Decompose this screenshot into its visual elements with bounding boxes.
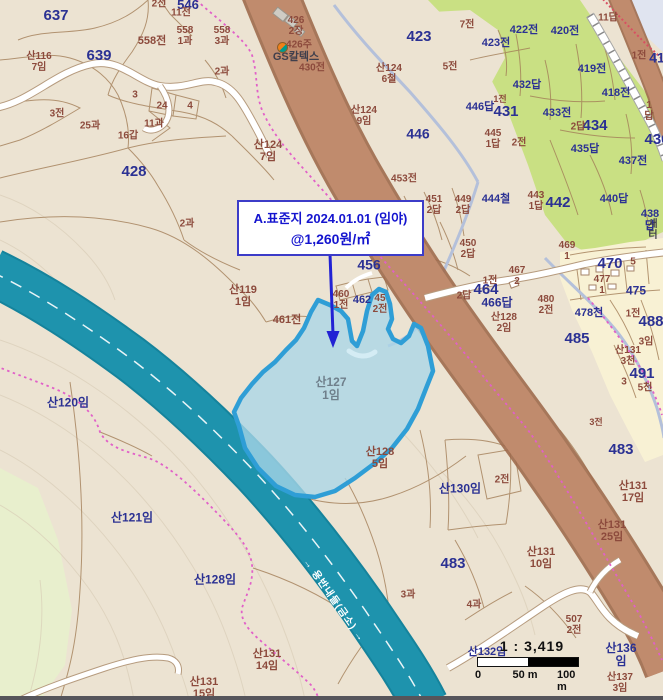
- cadastral-map-canvas[interactable]: 2전54611전637639558전558 1과558 3과산116 7임426…: [0, 0, 663, 700]
- map-line: [0, 63, 270, 156]
- map-line: [608, 284, 616, 289]
- map-line: [420, 430, 431, 528]
- scale-bar: [477, 657, 579, 667]
- annotation-title: A.표준지 2024.01.01 (임야): [254, 208, 408, 227]
- map-line: [455, 540, 484, 608]
- map-line: [440, 470, 535, 635]
- map-line: [0, 136, 226, 178]
- scale-ratio-label: 1 : 3,419: [462, 638, 602, 654]
- map-line: [611, 270, 619, 276]
- map-line: [400, 430, 478, 538]
- map-line: [627, 266, 634, 271]
- map-line: [506, 448, 511, 524]
- map-bottom-edge: [0, 696, 663, 700]
- map-line: [589, 285, 596, 290]
- map-scale: 1 : 3,419 0 50 m 100 m: [462, 638, 602, 683]
- map-line: [596, 266, 603, 272]
- annotation-arrow: [327, 254, 340, 348]
- map-line: [581, 269, 589, 275]
- scale-tick-50: 50 m: [512, 669, 537, 681]
- scale-ticks: 0 50 m 100 m: [462, 669, 602, 683]
- scale-tick-0: 0: [475, 669, 481, 681]
- scale-bar-white-segment: [478, 658, 528, 666]
- map-line: [424, 192, 442, 240]
- map-line: [100, 432, 152, 456]
- map-graphics: [0, 0, 663, 700]
- map-line: [184, 240, 240, 270]
- scale-tick-100: 100 m: [557, 669, 587, 693]
- annotation-price: @1,260원/㎡: [291, 229, 370, 249]
- map-line: [128, 148, 184, 240]
- map-line: [448, 524, 506, 530]
- standard-parcel-annotation: A.표준지 2024.01.01 (임야) @1,260원/㎡: [237, 200, 424, 256]
- map-line: [266, 316, 310, 322]
- map-line: [336, 282, 356, 300]
- map-line: [238, 288, 266, 322]
- map-line: [465, 592, 512, 620]
- scale-bar-black-segment: [528, 658, 578, 666]
- map-line: [18, 0, 148, 40]
- map-line: [160, 0, 192, 36]
- gs-caltex-logo-icon: [277, 42, 288, 53]
- pale-green-zone: [0, 468, 72, 700]
